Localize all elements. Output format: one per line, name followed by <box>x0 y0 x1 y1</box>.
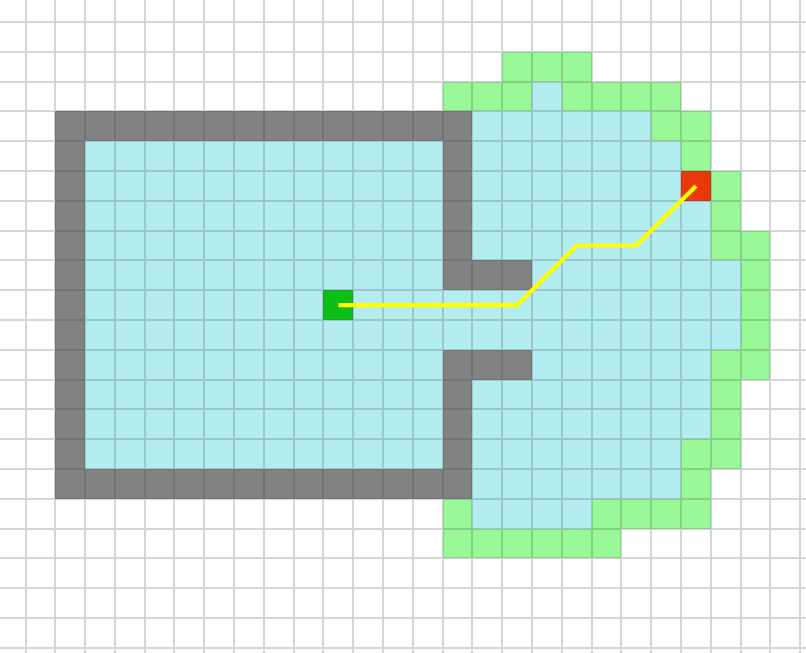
empty-cell <box>26 380 56 410</box>
empty-cell <box>26 231 56 261</box>
empty-cell <box>770 320 800 350</box>
explored-cell <box>174 320 204 350</box>
empty-cell <box>145 52 175 82</box>
explored-cell <box>532 350 562 380</box>
explored-cell <box>532 499 562 529</box>
wall-cell <box>443 350 473 380</box>
empty-cell <box>741 22 771 52</box>
wall-cell <box>55 290 85 320</box>
explored-cell <box>85 409 115 439</box>
empty-cell <box>85 529 115 559</box>
empty-cell <box>800 290 806 320</box>
empty-cell <box>85 22 115 52</box>
explored-cell <box>294 320 324 350</box>
empty-cell <box>681 648 711 653</box>
empty-cell <box>443 0 473 22</box>
explored-cell <box>294 141 324 171</box>
explored-cell <box>264 439 294 469</box>
explored-cell <box>145 439 175 469</box>
empty-cell <box>174 648 204 653</box>
explored-cell <box>502 141 532 171</box>
empty-cell <box>55 558 85 588</box>
empty-cell <box>651 0 681 22</box>
explored-cell <box>323 409 353 439</box>
empty-cell <box>770 499 800 529</box>
explored-cell <box>294 409 324 439</box>
empty-cell <box>651 588 681 618</box>
explored-cell <box>323 231 353 261</box>
empty-cell <box>711 558 741 588</box>
frontier-cell <box>443 82 473 112</box>
explored-cell <box>145 171 175 201</box>
explored-cell <box>204 141 234 171</box>
explored-cell <box>234 439 264 469</box>
empty-cell <box>353 618 383 648</box>
wall-cell <box>55 260 85 290</box>
empty-cell <box>26 648 56 653</box>
explored-cell <box>443 290 473 320</box>
empty-cell <box>800 409 806 439</box>
empty-cell <box>0 82 26 112</box>
empty-cell <box>26 260 56 290</box>
empty-cell <box>294 82 324 112</box>
empty-cell <box>741 529 771 559</box>
empty-cell <box>294 618 324 648</box>
empty-cell <box>413 499 443 529</box>
explored-cell <box>592 141 622 171</box>
explored-cell <box>264 409 294 439</box>
empty-cell <box>621 588 651 618</box>
empty-cell <box>770 558 800 588</box>
explored-cell <box>621 111 651 141</box>
empty-cell <box>472 22 502 52</box>
explored-cell <box>353 320 383 350</box>
frontier-cell <box>621 499 651 529</box>
explored-cell <box>532 171 562 201</box>
explored-cell <box>383 439 413 469</box>
explored-cell <box>383 260 413 290</box>
explored-cell <box>472 380 502 410</box>
empty-cell <box>145 618 175 648</box>
empty-cell <box>621 618 651 648</box>
empty-cell <box>204 529 234 559</box>
frontier-cell <box>443 529 473 559</box>
explored-cell <box>651 171 681 201</box>
empty-cell <box>55 618 85 648</box>
empty-cell <box>55 22 85 52</box>
empty-cell <box>562 618 592 648</box>
empty-cell <box>0 469 26 499</box>
explored-cell <box>353 231 383 261</box>
explored-cell <box>323 350 353 380</box>
explored-cell <box>562 201 592 231</box>
empty-cell <box>562 588 592 618</box>
explored-cell <box>562 409 592 439</box>
empty-cell <box>204 0 234 22</box>
empty-cell <box>85 618 115 648</box>
empty-cell <box>204 558 234 588</box>
empty-cell <box>532 618 562 648</box>
explored-cell <box>353 141 383 171</box>
explored-cell <box>383 380 413 410</box>
explored-cell <box>85 290 115 320</box>
explored-cell <box>204 350 234 380</box>
empty-cell <box>770 22 800 52</box>
empty-cell <box>234 558 264 588</box>
goal-cell <box>681 171 711 201</box>
explored-cell <box>413 350 443 380</box>
wall-cell <box>145 469 175 499</box>
empty-cell <box>353 558 383 588</box>
empty-cell <box>353 22 383 52</box>
explored-cell <box>472 469 502 499</box>
empty-cell <box>115 82 145 112</box>
wall-cell <box>443 439 473 469</box>
empty-cell <box>711 0 741 22</box>
explored-cell <box>413 290 443 320</box>
explored-cell <box>264 320 294 350</box>
empty-cell <box>800 499 806 529</box>
explored-cell <box>115 380 145 410</box>
empty-cell <box>800 350 806 380</box>
empty-cell <box>353 648 383 653</box>
empty-cell <box>115 499 145 529</box>
explored-cell <box>145 290 175 320</box>
explored-cell <box>323 141 353 171</box>
frontier-cell <box>681 499 711 529</box>
empty-cell <box>234 529 264 559</box>
explored-cell <box>532 260 562 290</box>
explored-cell <box>234 171 264 201</box>
empty-cell <box>681 529 711 559</box>
wall-cell <box>174 469 204 499</box>
explored-cell <box>502 499 532 529</box>
empty-cell <box>26 439 56 469</box>
empty-cell <box>800 52 806 82</box>
frontier-cell <box>741 260 771 290</box>
explored-cell <box>234 320 264 350</box>
explored-cell <box>472 231 502 261</box>
explored-cell <box>115 141 145 171</box>
empty-cell <box>353 588 383 618</box>
empty-cell <box>323 648 353 653</box>
explored-cell <box>413 320 443 350</box>
empty-cell <box>741 558 771 588</box>
empty-cell <box>770 201 800 231</box>
frontier-cell <box>443 499 473 529</box>
empty-cell <box>115 0 145 22</box>
frontier-cell <box>741 290 771 320</box>
explored-cell <box>294 201 324 231</box>
wall-cell <box>115 469 145 499</box>
explored-cell <box>174 260 204 290</box>
empty-cell <box>294 499 324 529</box>
empty-cell <box>26 171 56 201</box>
explored-cell <box>413 439 443 469</box>
empty-cell <box>0 231 26 261</box>
empty-cell <box>294 529 324 559</box>
empty-cell <box>0 141 26 171</box>
empty-cell <box>711 529 741 559</box>
explored-cell <box>472 171 502 201</box>
empty-cell <box>681 52 711 82</box>
explored-cell <box>502 469 532 499</box>
empty-cell <box>264 0 294 22</box>
empty-cell <box>174 22 204 52</box>
explored-cell <box>353 290 383 320</box>
empty-cell <box>681 558 711 588</box>
empty-cell <box>234 499 264 529</box>
empty-cell <box>800 171 806 201</box>
frontier-cell <box>711 380 741 410</box>
wall-cell <box>502 350 532 380</box>
empty-cell <box>621 52 651 82</box>
empty-cell <box>26 290 56 320</box>
wall-cell <box>443 111 473 141</box>
empty-cell <box>145 499 175 529</box>
wall-cell <box>55 320 85 350</box>
explored-cell <box>562 499 592 529</box>
empty-cell <box>323 588 353 618</box>
explored-cell <box>383 320 413 350</box>
explored-cell <box>383 201 413 231</box>
explored-cell <box>264 380 294 410</box>
explored-cell <box>85 350 115 380</box>
empty-cell <box>26 201 56 231</box>
empty-cell <box>0 290 26 320</box>
wall-cell <box>204 469 234 499</box>
explored-cell <box>651 469 681 499</box>
start-cell <box>323 290 353 320</box>
wall-cell <box>55 201 85 231</box>
explored-cell <box>681 409 711 439</box>
empty-cell <box>294 648 324 653</box>
wall-cell <box>264 469 294 499</box>
empty-cell <box>0 111 26 141</box>
explored-cell <box>204 260 234 290</box>
empty-cell <box>472 0 502 22</box>
explored-cell <box>532 82 562 112</box>
explored-cell <box>174 380 204 410</box>
frontier-cell <box>651 111 681 141</box>
explored-cell <box>174 439 204 469</box>
explored-cell <box>502 201 532 231</box>
empty-cell <box>472 52 502 82</box>
explored-cell <box>204 231 234 261</box>
frontier-cell <box>711 409 741 439</box>
empty-cell <box>234 0 264 22</box>
empty-cell <box>651 558 681 588</box>
explored-cell <box>323 171 353 201</box>
wall-cell <box>204 111 234 141</box>
frontier-cell <box>592 82 622 112</box>
wall-cell <box>443 171 473 201</box>
frontier-cell <box>651 499 681 529</box>
explored-cell <box>323 260 353 290</box>
empty-cell <box>323 0 353 22</box>
explored-cell <box>592 201 622 231</box>
empty-cell <box>26 141 56 171</box>
empty-cell <box>800 648 806 653</box>
explored-cell <box>145 380 175 410</box>
explored-cell <box>353 380 383 410</box>
empty-cell <box>204 499 234 529</box>
empty-cell <box>621 22 651 52</box>
explored-cell <box>413 171 443 201</box>
explored-cell <box>115 350 145 380</box>
empty-cell <box>443 648 473 653</box>
empty-cell <box>174 52 204 82</box>
empty-cell <box>55 52 85 82</box>
wall-cell <box>234 469 264 499</box>
empty-cell <box>234 52 264 82</box>
wall-cell <box>472 350 502 380</box>
explored-cell <box>472 290 502 320</box>
empty-cell <box>323 22 353 52</box>
empty-cell <box>651 648 681 653</box>
empty-cell <box>323 529 353 559</box>
frontier-cell <box>562 52 592 82</box>
explored-cell <box>294 171 324 201</box>
explored-cell <box>651 260 681 290</box>
explored-cell <box>592 350 622 380</box>
explored-cell <box>115 320 145 350</box>
explored-cell <box>204 290 234 320</box>
explored-cell <box>532 231 562 261</box>
empty-cell <box>770 588 800 618</box>
explored-cell <box>145 201 175 231</box>
wall-cell <box>55 350 85 380</box>
explored-cell <box>85 439 115 469</box>
empty-cell <box>264 618 294 648</box>
empty-cell <box>770 290 800 320</box>
explored-cell <box>264 290 294 320</box>
explored-cell <box>115 439 145 469</box>
explored-cell <box>264 350 294 380</box>
empty-cell <box>145 82 175 112</box>
explored-cell <box>502 290 532 320</box>
frontier-cell <box>741 231 771 261</box>
empty-cell <box>55 82 85 112</box>
empty-cell <box>800 141 806 171</box>
explored-cell <box>353 201 383 231</box>
explored-cell <box>621 290 651 320</box>
explored-cell <box>323 320 353 350</box>
empty-cell <box>770 0 800 22</box>
explored-cell <box>264 141 294 171</box>
empty-cell <box>383 648 413 653</box>
explored-cell <box>145 409 175 439</box>
empty-cell <box>800 529 806 559</box>
explored-cell <box>532 439 562 469</box>
empty-cell <box>741 52 771 82</box>
empty-cell <box>502 22 532 52</box>
explored-cell <box>532 141 562 171</box>
empty-cell <box>145 22 175 52</box>
explored-cell <box>562 320 592 350</box>
frontier-cell <box>741 350 771 380</box>
empty-cell <box>711 111 741 141</box>
empty-cell <box>681 588 711 618</box>
explored-cell <box>472 201 502 231</box>
empty-cell <box>413 0 443 22</box>
explored-cell <box>562 380 592 410</box>
empty-cell <box>770 260 800 290</box>
empty-cell <box>174 558 204 588</box>
empty-cell <box>26 469 56 499</box>
explored-cell <box>532 409 562 439</box>
explored-cell <box>294 290 324 320</box>
empty-cell <box>443 588 473 618</box>
explored-cell <box>85 320 115 350</box>
empty-cell <box>681 22 711 52</box>
wall-cell <box>323 111 353 141</box>
empty-cell <box>115 22 145 52</box>
frontier-cell <box>562 82 592 112</box>
empty-cell <box>443 52 473 82</box>
empty-cell <box>26 529 56 559</box>
empty-cell <box>0 52 26 82</box>
explored-cell <box>174 290 204 320</box>
wall-cell <box>55 111 85 141</box>
explored-cell <box>294 350 324 380</box>
frontier-cell <box>681 141 711 171</box>
empty-cell <box>472 558 502 588</box>
empty-cell <box>741 141 771 171</box>
empty-cell <box>0 171 26 201</box>
explored-cell <box>621 141 651 171</box>
empty-cell <box>711 618 741 648</box>
empty-cell <box>651 22 681 52</box>
frontier-cell <box>562 529 592 559</box>
empty-cell <box>770 231 800 261</box>
explored-cell <box>145 260 175 290</box>
frontier-cell <box>592 499 622 529</box>
frontier-cell <box>711 201 741 231</box>
empty-cell <box>323 618 353 648</box>
empty-cell <box>85 558 115 588</box>
empty-cell <box>532 22 562 52</box>
occupancy-grid <box>0 0 806 653</box>
explored-cell <box>85 260 115 290</box>
explored-cell <box>472 320 502 350</box>
explored-cell <box>234 350 264 380</box>
empty-cell <box>85 0 115 22</box>
explored-cell <box>562 111 592 141</box>
frontier-cell <box>711 439 741 469</box>
empty-cell <box>264 529 294 559</box>
empty-cell <box>741 409 771 439</box>
empty-cell <box>711 52 741 82</box>
empty-cell <box>592 588 622 618</box>
explored-cell <box>681 231 711 261</box>
empty-cell <box>621 648 651 653</box>
empty-cell <box>651 529 681 559</box>
explored-cell <box>681 260 711 290</box>
explored-cell <box>234 290 264 320</box>
empty-cell <box>174 618 204 648</box>
empty-cell <box>711 141 741 171</box>
empty-cell <box>741 171 771 201</box>
empty-cell <box>592 22 622 52</box>
explored-cell <box>592 320 622 350</box>
explored-cell <box>234 409 264 439</box>
explored-cell <box>413 260 443 290</box>
wall-cell <box>443 409 473 439</box>
wall-cell <box>323 469 353 499</box>
empty-cell <box>621 529 651 559</box>
explored-cell <box>592 469 622 499</box>
